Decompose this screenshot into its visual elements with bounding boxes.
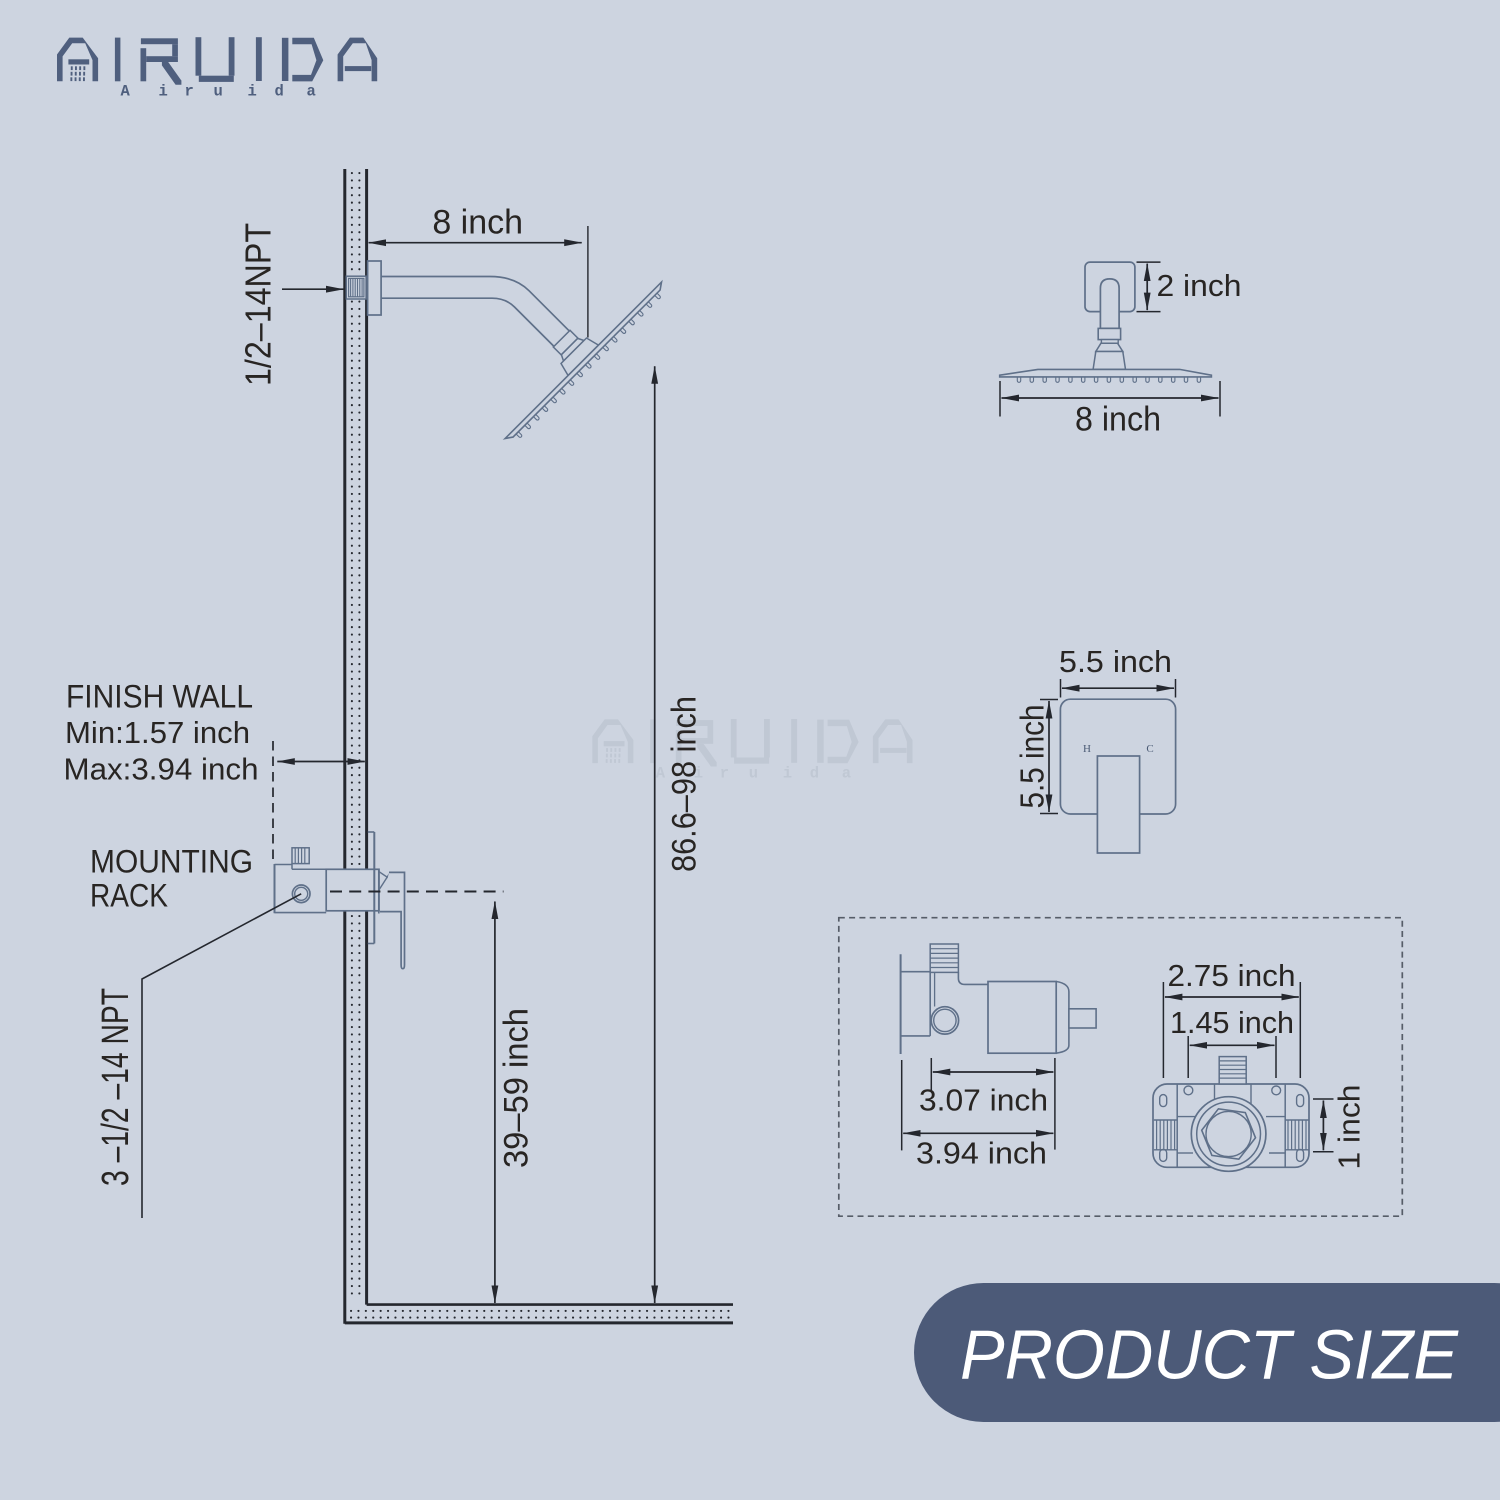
svg-text:d: d [810,764,819,782]
svg-text:a: a [842,764,851,782]
svg-text:C: C [1146,743,1153,755]
svg-text:PRODUCT SIZE: PRODUCT SIZE [960,1316,1459,1394]
svg-text:A: A [656,764,666,782]
svg-text:86.6–98 inch: 86.6–98 inch [666,696,704,872]
svg-text:u: u [214,83,223,101]
svg-text:2 inch: 2 inch [1157,268,1242,303]
svg-text:5.5 inch: 5.5 inch [1014,705,1051,809]
svg-text:1/2–14NPT: 1/2–14NPT [238,223,279,386]
svg-text:8 inch: 8 inch [432,204,523,242]
svg-text:3.07 inch: 3.07 inch [919,1083,1048,1118]
svg-text:a: a [307,83,316,101]
svg-text:3.94 inch: 3.94 inch [916,1136,1047,1171]
svg-text:2.75 inch: 2.75 inch [1168,958,1296,993]
svg-text:1.45 inch: 1.45 inch [1170,1005,1294,1040]
svg-text:39–59 inch: 39–59 inch [498,1008,536,1168]
svg-text:8 inch: 8 inch [1075,401,1161,439]
svg-text:3 –1/2 –14 NPT: 3 –1/2 –14 NPT [95,988,137,1186]
svg-text:H: H [1083,743,1091,755]
svg-text:RACK: RACK [90,878,168,914]
svg-text:5.5 inch: 5.5 inch [1059,644,1172,679]
svg-text:r: r [720,764,729,782]
svg-text:i: i [159,83,168,101]
svg-text:u: u [749,764,758,782]
svg-text:i: i [248,83,257,101]
svg-text:FINISH WALL: FINISH WALL [66,679,253,715]
svg-text:A: A [121,83,131,101]
svg-text:Max:3.94 inch: Max:3.94 inch [64,752,259,787]
svg-text:d: d [275,83,284,101]
svg-text:MOUNTING: MOUNTING [90,844,253,880]
svg-text:1 inch: 1 inch [1332,1085,1367,1170]
svg-text:r: r [185,83,194,101]
svg-text:i: i [783,764,792,782]
svg-text:Min:1.57 inch: Min:1.57 inch [65,715,250,750]
